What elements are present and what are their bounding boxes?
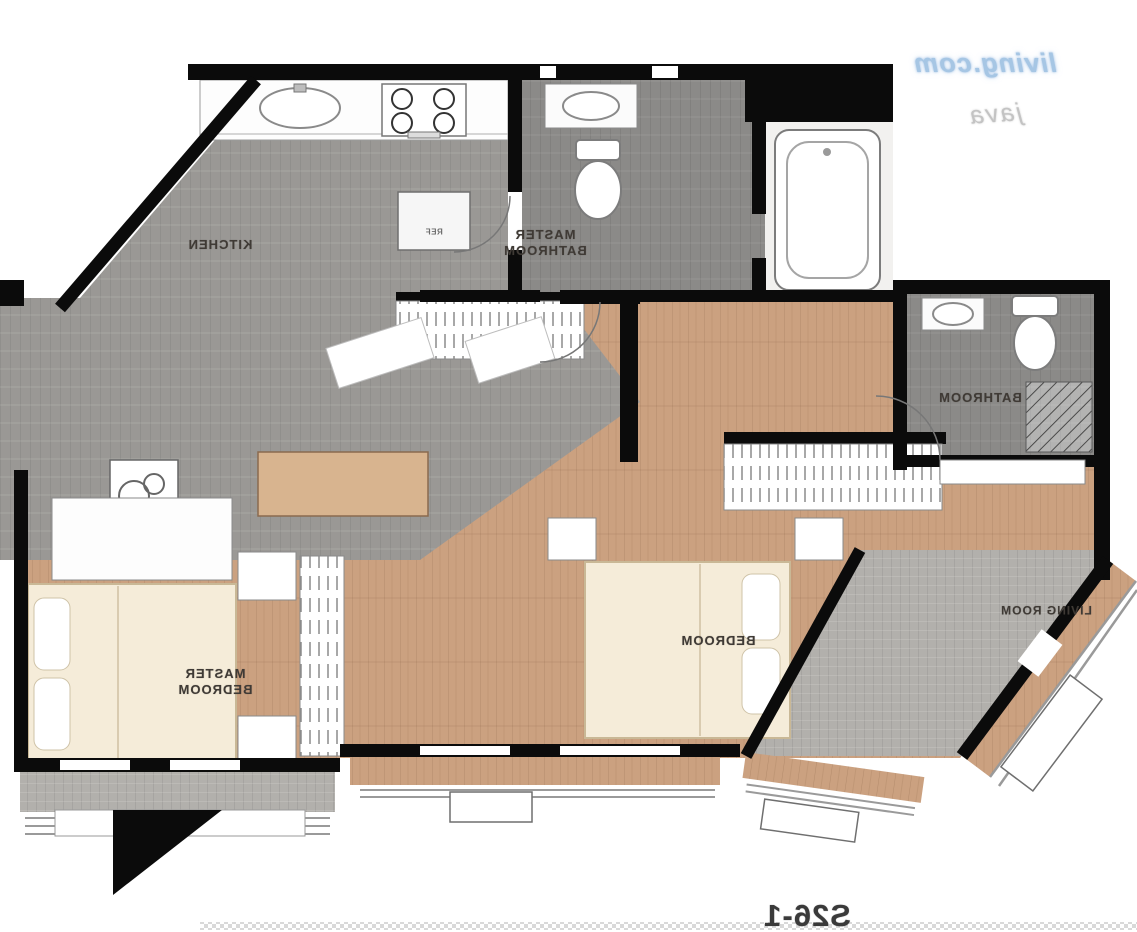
watermark-logo: living.com (880, 48, 1090, 79)
pillow (742, 574, 780, 640)
wall-mass-top-right (745, 64, 893, 122)
bedroom-label-text: BEDROOM (681, 633, 756, 648)
wall-master-bedroom-bottom (20, 758, 340, 772)
master-bedroom-label-line1: MASTER (178, 666, 253, 682)
wall-master-bedroom-left (14, 470, 28, 772)
bedroom-label: BEDROOM (681, 633, 756, 649)
nightstand (238, 552, 296, 600)
living-room-label-text: LIVING ROOM (1000, 604, 1092, 618)
sliding-door (940, 460, 1085, 484)
wall-wedge (113, 810, 222, 895)
floor-plan-drawing (0, 0, 1137, 932)
watermark-line2: java (967, 98, 1023, 130)
master-bathroom-label: MASTER BATHROOM (503, 227, 587, 260)
kitchen-sink-icon (260, 88, 340, 128)
bedroom-wardrobe (724, 432, 946, 510)
vanity-basin-icon (563, 92, 619, 120)
ac-unit (450, 792, 532, 822)
dresser (52, 498, 232, 580)
nightstand (795, 518, 843, 560)
bathroom-toilet-icon (1012, 296, 1058, 370)
wall (0, 280, 24, 306)
bathroom-label: BATHROOM (938, 390, 1022, 406)
master-balcony-floor (20, 772, 335, 812)
master-toilet-icon (575, 140, 621, 219)
bathtub-icon (775, 130, 880, 290)
nightstand (238, 716, 296, 764)
pillow (34, 598, 70, 670)
fridge-label-text: REF (425, 228, 443, 237)
unit-code-text: S26-1 (763, 898, 851, 932)
nightstand (548, 518, 596, 560)
balcony-railing (360, 790, 715, 797)
watermark-line1: living.com (913, 48, 1057, 78)
stove-icon (382, 84, 466, 138)
kitchen-label: KITCHEN (188, 237, 253, 253)
living-room-label: LIVING ROOM (1000, 604, 1092, 619)
bedroom-balcony (736, 752, 925, 850)
pillow (34, 678, 70, 750)
unit-code-label: S26-1 (742, 898, 872, 932)
wall-center-bottom (340, 744, 740, 757)
master-bathroom-label-line1: MASTER (503, 227, 587, 243)
bed (585, 562, 790, 738)
center-balcony-floor (350, 757, 720, 785)
master-wardrobe (300, 556, 344, 756)
window (652, 66, 678, 78)
bathroom-label-text: BATHROOM (938, 390, 1022, 405)
master-bedroom-label-line2: BEDROOM (178, 682, 253, 698)
bathroom-sink-icon (922, 298, 984, 330)
window (540, 66, 556, 78)
kitchen-label-text: KITCHEN (188, 237, 253, 252)
wall-kitchen-bath-divider (508, 80, 522, 298)
shower-icon (1026, 382, 1092, 452)
sink-faucet-icon (294, 84, 306, 92)
fridge-icon (398, 192, 470, 250)
fridge-label: REF (425, 228, 443, 237)
wall-bath-tub-divider (752, 122, 766, 298)
console-desk (258, 452, 428, 516)
floor-plan: KITCHEN MASTER BATHROOM BATHROOM BEDROOM… (0, 0, 1137, 932)
master-bedroom-label: MASTER BEDROOM (178, 666, 253, 699)
master-bathroom-label-line2: BATHROOM (503, 243, 587, 259)
wall-top-block-bottom (420, 290, 893, 302)
boundary-dotted-line (200, 922, 1137, 930)
